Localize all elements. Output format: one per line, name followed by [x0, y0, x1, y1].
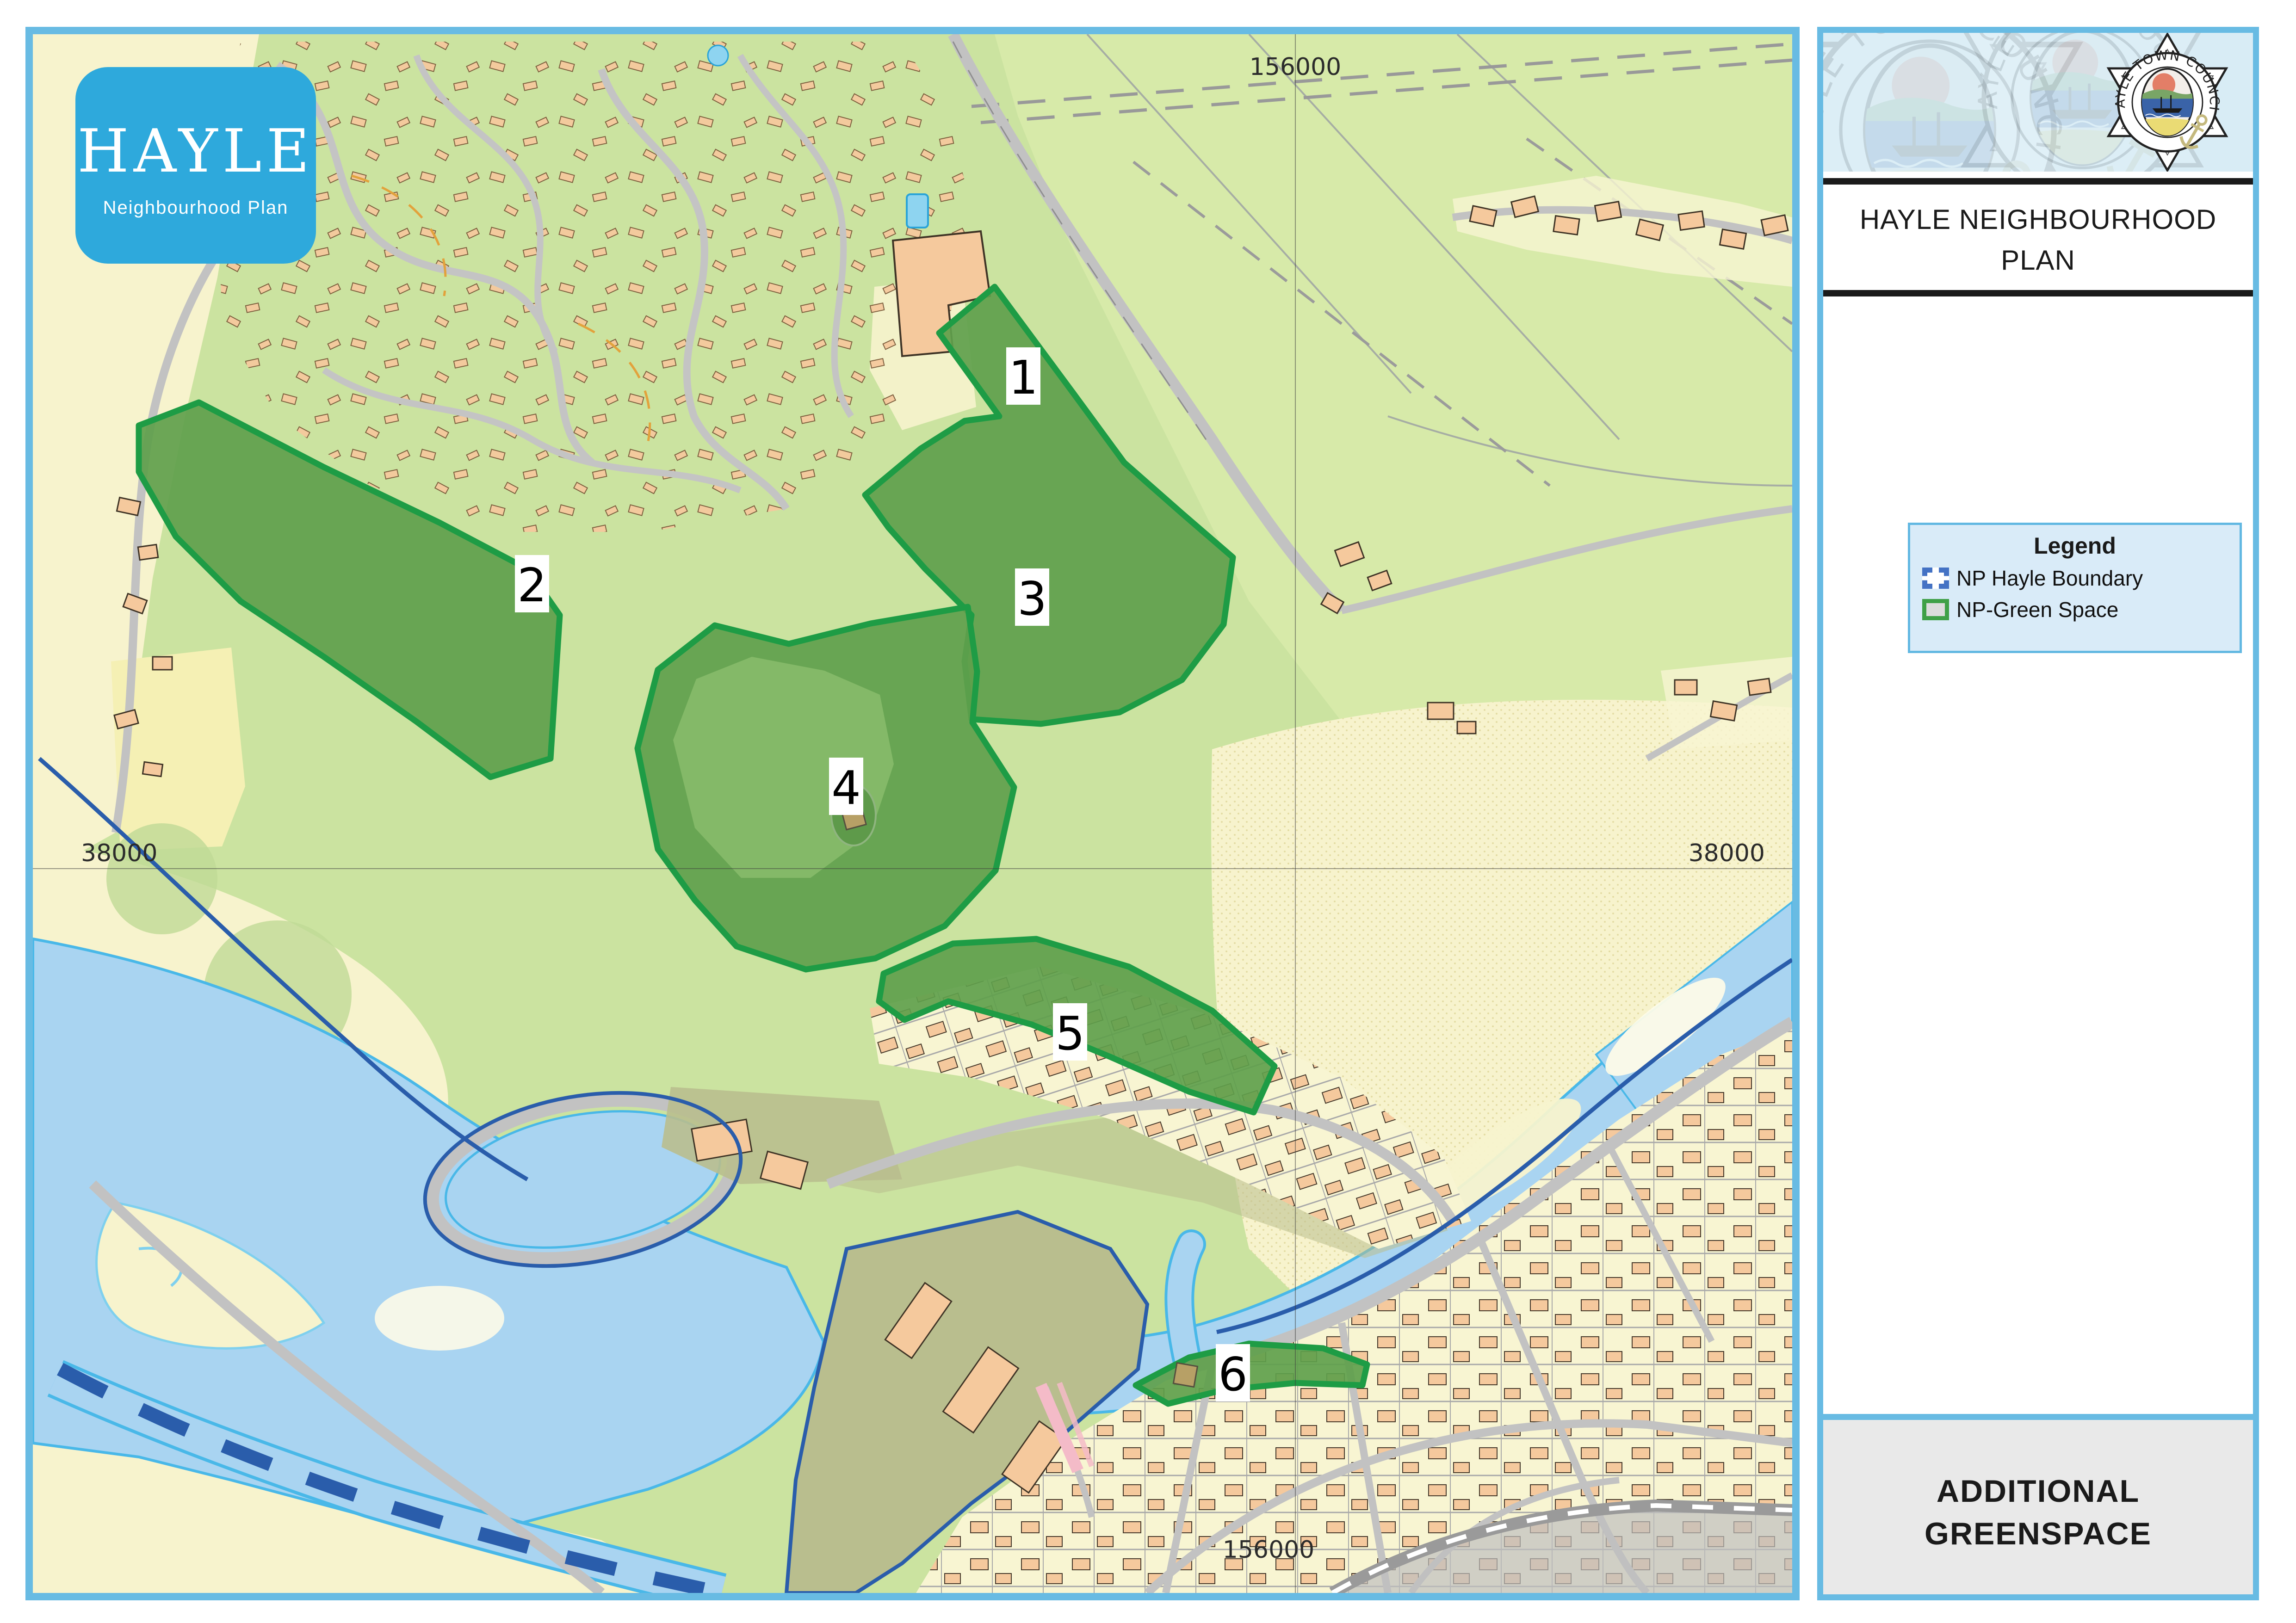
- sheet-title-line2: GREENSPACE: [1823, 1512, 2253, 1555]
- logo-title: HAYLE: [75, 122, 316, 182]
- legend-title: Legend: [1910, 532, 2240, 559]
- map-panel: 156000 156000 38000 38000 1 2 3 4 5 6 HA…: [25, 27, 1800, 1600]
- title-divider-top: [1823, 178, 2253, 185]
- boundary-swatch-icon: [1922, 568, 1949, 589]
- panel-header-banner: HAYLE TOWN COUNCIL: [1823, 33, 2253, 172]
- grid-label-left: 38000: [81, 839, 157, 867]
- svg-text:2: 2: [517, 558, 547, 612]
- label-greenspace-1: 1: [1006, 347, 1040, 405]
- panel-title: HAYLE NEIGHBOURHOOD PLAN: [1823, 199, 2253, 281]
- svg-text:4: 4: [831, 761, 861, 815]
- svg-text:6: 6: [1218, 1347, 1248, 1401]
- legend-item-boundary: NP Hayle Boundary: [1922, 566, 2240, 591]
- title-divider-bottom: [1823, 290, 2253, 296]
- svg-text:3: 3: [1017, 572, 1047, 626]
- town-council-crest-banner: HAYLE TOWN COUNCIL: [1823, 33, 2253, 172]
- greenspace-swatch-icon: [1922, 599, 1949, 620]
- grid-label-right: 38000: [1689, 839, 1765, 867]
- panel-title-line2: PLAN: [1823, 240, 2253, 281]
- basemap-svg: 156000 156000 38000 38000 1 2 3 4 5 6: [33, 34, 1792, 1593]
- side-panel: HAYLE TOWN COUNCIL: [1817, 27, 2259, 1600]
- label-greenspace-2: 2: [515, 555, 549, 612]
- grid-label-top: 156000: [1250, 53, 1342, 81]
- grid-label-bottom: 156000: [1223, 1536, 1315, 1564]
- legend-item-greenspace-label: NP-Green Space: [1956, 597, 2118, 622]
- legend-item-greenspace: NP-Green Space: [1922, 597, 2240, 622]
- legend-item-boundary-label: NP Hayle Boundary: [1956, 566, 2143, 591]
- label-greenspace-5: 5: [1053, 1003, 1087, 1061]
- label-greenspace-3: 3: [1015, 568, 1049, 626]
- label-greenspace-6: 6: [1216, 1344, 1250, 1401]
- label-greenspace-4: 4: [829, 758, 863, 815]
- svg-text:5: 5: [1055, 1006, 1085, 1061]
- hayle-np-logo: HAYLE Neighbourhood Plan: [75, 67, 316, 264]
- panel-title-line1: HAYLE NEIGHBOURHOOD: [1823, 199, 2253, 240]
- legend: Legend NP Hayle Boundary NP-Green Space: [1908, 523, 2242, 653]
- logo-subtitle: Neighbourhood Plan: [75, 197, 316, 218]
- sheet-title-line1: ADDITIONAL: [1823, 1470, 2253, 1512]
- map-sheet-title-box: ADDITIONAL GREENSPACE: [1823, 1414, 2253, 1594]
- svg-text:1: 1: [1009, 351, 1038, 405]
